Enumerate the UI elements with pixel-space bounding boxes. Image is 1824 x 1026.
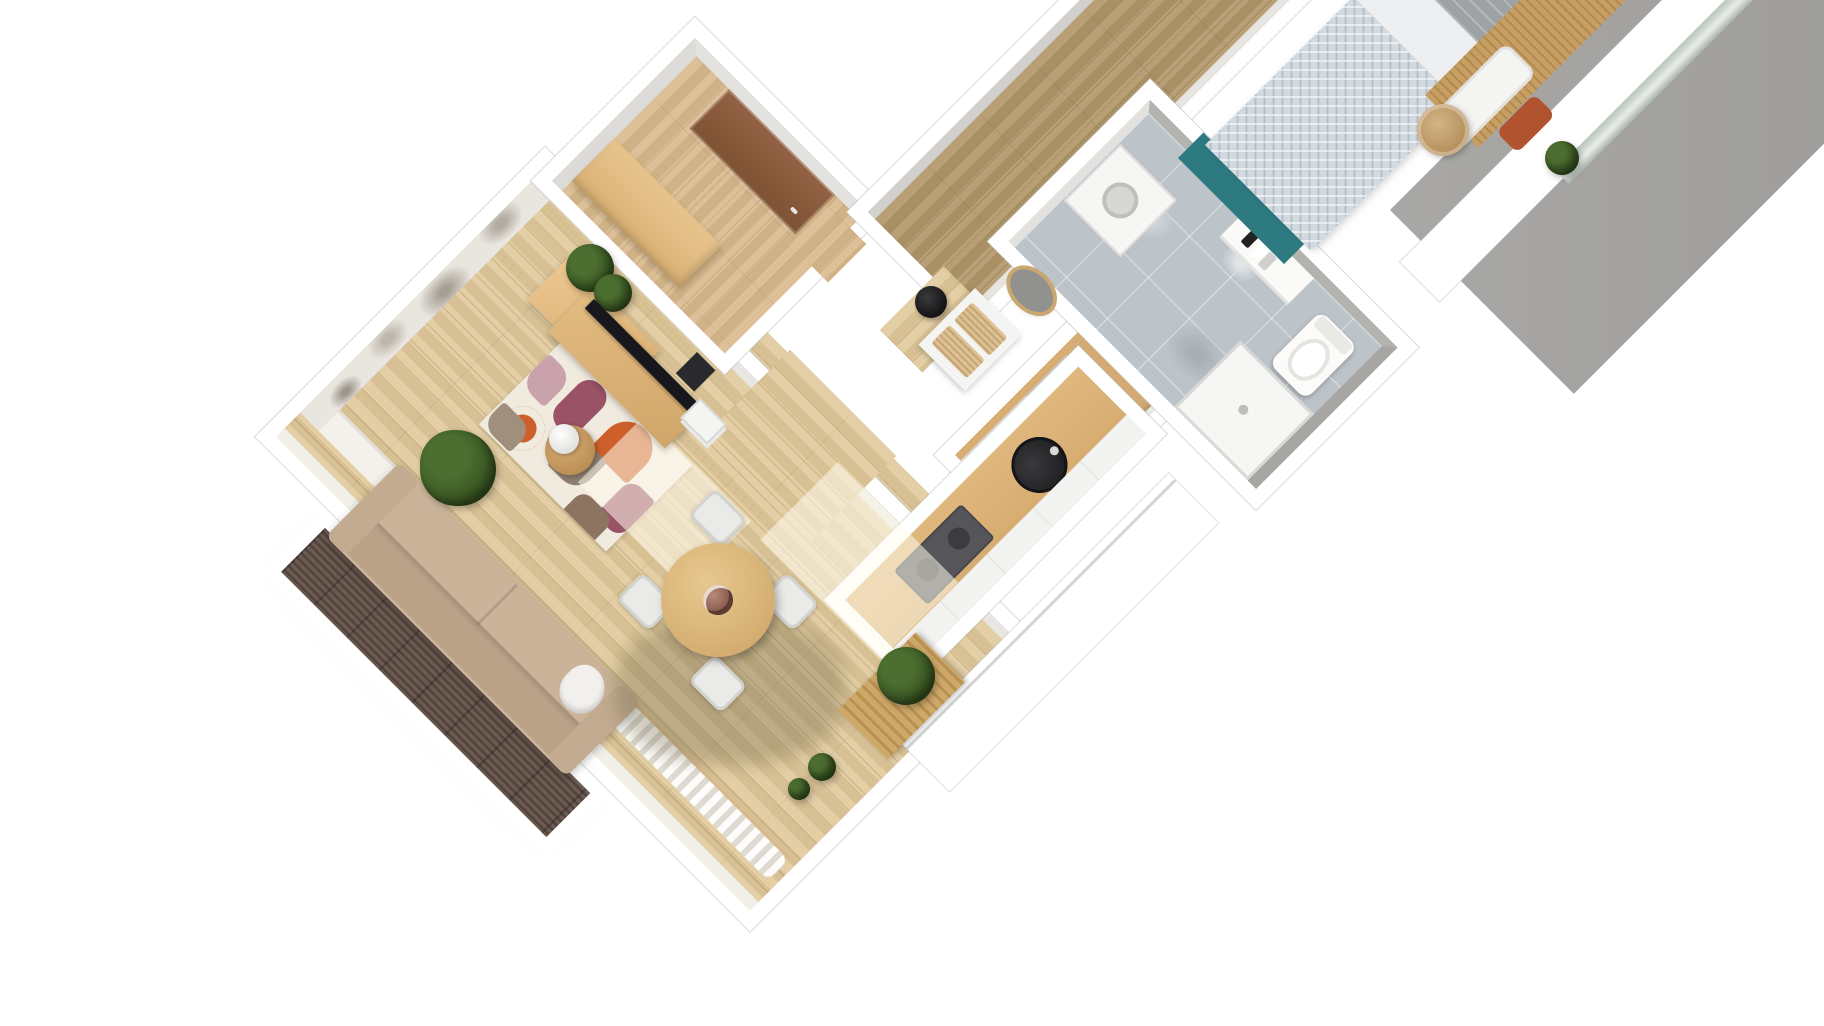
- floor-plan-render: [0, 0, 1824, 1026]
- washer-door: [1095, 175, 1146, 226]
- sofa-cushion-seam: [476, 584, 518, 626]
- floor-plant: [420, 430, 496, 506]
- potted-plant: [788, 778, 810, 800]
- bench-plant: [877, 647, 935, 705]
- table-lamp: [549, 424, 579, 454]
- door-handle: [790, 206, 798, 214]
- potted-plant: [808, 753, 836, 781]
- flower-centerpiece: [703, 585, 733, 615]
- faucet: [1048, 444, 1061, 457]
- shower-drain: [1236, 403, 1250, 417]
- front-door: [689, 89, 835, 235]
- bedroom-plant: [1545, 141, 1579, 175]
- rattan-side-table: [1417, 104, 1469, 156]
- pendant-lamp: [915, 286, 947, 318]
